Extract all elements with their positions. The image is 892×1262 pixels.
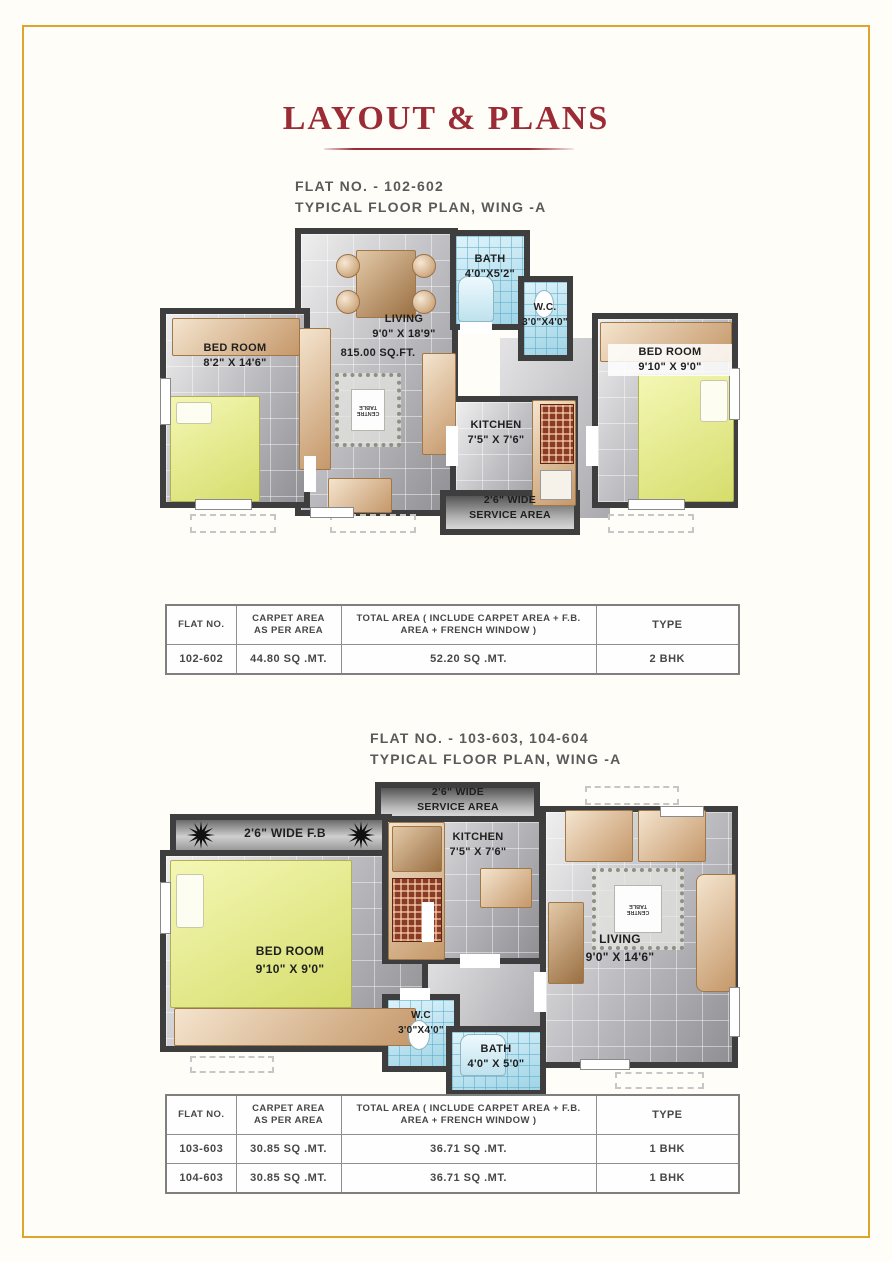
room-name: W.C — [378, 1008, 464, 1023]
column-header-total-area: TOTAL AREA ( INCLUDE CARPET AREA + F.B. … — [341, 1095, 596, 1135]
centre-table: CENTRE TABLE — [335, 373, 401, 447]
cell-total-area: 52.20 SQ .MT. — [341, 645, 596, 675]
label-service-area: 2'6" WIDE SERVICE AREA — [443, 493, 577, 523]
label-bedroom-left: BED ROOM 8'2" X 14'6" — [170, 341, 300, 371]
dining-chair — [412, 254, 436, 278]
stove — [392, 878, 442, 942]
room-dim: 3'0"X4'0" — [512, 315, 578, 330]
room-dim: 4'0" X 5'0" — [450, 1057, 542, 1072]
door-gap — [586, 426, 598, 466]
room-name: BATH — [448, 252, 532, 267]
room-dim: 9'0" X 18'9" — [334, 327, 474, 342]
table-row: 102-602 44.80 SQ .MT. 52.20 SQ .MT. 2 BH… — [166, 645, 739, 675]
plan1-heading: FLAT NO. - 102-602 TYPICAL FLOOR PLAN, W… — [295, 176, 546, 218]
label-living: LIVING 9'0" X 18'9" — [334, 312, 474, 342]
cell-type: 1 BHK — [596, 1164, 739, 1194]
column-header-total-area: TOTAL AREA ( INCLUDE CARPET AREA + F.B. … — [341, 605, 596, 645]
cell-flat-no: 103-603 — [166, 1135, 236, 1164]
service-line2: SERVICE AREA — [443, 508, 577, 523]
label-wc: W.C. 3'0"X4'0" — [512, 300, 578, 330]
column-header-carpet-area: CARPET AREA AS PER AREA — [236, 1095, 341, 1135]
balcony-outline — [608, 514, 694, 533]
room-name: LIVING — [334, 312, 474, 327]
armchair — [565, 810, 633, 862]
label-kitchen: KITCHEN 7'5" X 7'6" — [446, 418, 546, 448]
table-row: 104-603 30.85 SQ .MT. 36.71 SQ .MT. 1 BH… — [166, 1164, 739, 1194]
cell-carpet-area: 30.85 SQ .MT. — [236, 1135, 341, 1164]
cell-type: 2 BHK — [596, 645, 739, 675]
room-dim: 9'10" X 9'0" — [190, 960, 390, 978]
room-dim: 8'2" X 14'6" — [170, 356, 300, 371]
room-name: BED ROOM — [611, 345, 729, 360]
table-header-row: FLAT NO. CARPET AREA AS PER AREA TOTAL A… — [166, 1095, 739, 1135]
service-line1: 2'6" WIDE — [378, 785, 538, 800]
window-marker — [660, 806, 704, 817]
centre-table-label: CENTRE TABLE — [353, 404, 383, 416]
spec-table-1: FLAT NO. CARPET AREA AS PER AREA TOTAL A… — [165, 604, 740, 675]
column-header-flat-no: FLAT NO. — [166, 605, 236, 645]
window-marker — [729, 987, 740, 1037]
window-marker — [160, 378, 171, 425]
spec-table-2: FLAT NO. CARPET AREA AS PER AREA TOTAL A… — [165, 1094, 740, 1194]
cell-type: 1 BHK — [596, 1135, 739, 1164]
door-gap — [400, 988, 430, 1000]
balcony-outline — [585, 786, 679, 805]
cell-total-area: 36.71 SQ .MT. — [341, 1164, 596, 1194]
cell-total-area: 36.71 SQ .MT. — [341, 1135, 596, 1164]
plan2-heading-line1: FLAT NO. - 103-603, 104-604 — [370, 728, 621, 749]
label-wc: W.C 3'0"X4'0" — [378, 1008, 464, 1038]
room-name: KITCHEN — [446, 418, 546, 433]
cell-carpet-area: 30.85 SQ .MT. — [236, 1164, 341, 1194]
label-living: LIVING 9'0" X 14'6" — [540, 930, 700, 966]
label-bath: BATH 4'0"X5'2" — [448, 252, 532, 282]
service-line1: 2'6" WIDE — [443, 493, 577, 508]
label-flower-bed: 2'6" WIDE F.B — [210, 826, 360, 841]
door-gap — [534, 972, 546, 1012]
balcony-outline — [190, 1056, 274, 1073]
label-bath: BATH 4'0" X 5'0" — [450, 1042, 542, 1072]
plan1-heading-line1: FLAT NO. - 102-602 — [295, 176, 546, 197]
column-header-flat-no: FLAT NO. — [166, 1095, 236, 1135]
label-bedroom-right: BED ROOM 9'10" X 9'0" — [608, 344, 732, 376]
dining-table — [356, 250, 416, 318]
room-name: LIVING — [540, 930, 700, 948]
pillow — [176, 874, 204, 928]
page-title: LAYOUT & PLANS — [0, 100, 892, 138]
label-total-area: 815.00 SQ.FT. — [308, 346, 448, 361]
dining-chair — [336, 290, 360, 314]
table-header-row: FLAT NO. CARPET AREA AS PER AREA TOTAL A… — [166, 605, 739, 645]
column-header-type: TYPE — [596, 1095, 739, 1135]
pillow — [176, 402, 212, 424]
room-dim: 4'0"X5'2" — [448, 267, 532, 282]
label-bedroom: BED ROOM 9'10" X 9'0" — [190, 942, 390, 978]
door-gap — [460, 954, 500, 968]
label-kitchen: KITCHEN 7'5" X 7'6" — [420, 830, 536, 860]
centre-table-top: CENTRE TABLE — [614, 885, 662, 933]
window-marker — [310, 507, 354, 518]
balcony-outline — [190, 514, 276, 533]
room-name: W.C. — [512, 300, 578, 315]
window-marker — [580, 1059, 630, 1070]
floor-plan-1: CENTRE TABLE BED ROOM 8'2" X 14'6" — [160, 228, 740, 535]
window-marker — [195, 499, 252, 510]
dining-chair — [336, 254, 360, 278]
balcony-outline — [615, 1072, 704, 1089]
door-gap — [304, 456, 316, 492]
cell-flat-no: 104-603 — [166, 1164, 236, 1194]
service-line2: SERVICE AREA — [378, 800, 538, 815]
plan2-heading-line2: TYPICAL FLOOR PLAN, WING -A — [370, 749, 621, 770]
cell-flat-no: 102-602 — [166, 645, 236, 675]
column-header-type: TYPE — [596, 605, 739, 645]
room-dim: 7'5" X 7'6" — [446, 433, 546, 448]
centre-table-label: CENTRE TABLE — [623, 903, 653, 915]
pillow — [700, 380, 728, 422]
room-dim: 7'5" X 7'6" — [420, 845, 536, 860]
title-underline — [324, 148, 574, 150]
room-name: BATH — [450, 1042, 542, 1057]
plan2-heading: FLAT NO. - 103-603, 104-604 TYPICAL FLOO… — [370, 728, 621, 770]
floor-plan-2: CENTRE TABLE 2'6" WIDE SERVICE AREA 2'6"… — [160, 782, 740, 1097]
label-service-area: 2'6" WIDE SERVICE AREA — [378, 785, 538, 815]
door-gap — [422, 902, 434, 942]
cell-carpet-area: 44.80 SQ .MT. — [236, 645, 341, 675]
table-row: 103-603 30.85 SQ .MT. 36.71 SQ .MT. 1 BH… — [166, 1135, 739, 1164]
room-dim: 9'0" X 14'6" — [540, 948, 700, 966]
kitchen-counter — [480, 868, 532, 908]
room-name: KITCHEN — [420, 830, 536, 845]
room-name: BED ROOM — [190, 942, 390, 960]
brochure-page: LAYOUT & PLANS FLAT NO. - 102-602 TYPICA… — [0, 0, 892, 1262]
room-dim: 9'10" X 9'0" — [611, 360, 729, 375]
room-dim: 3'0"X4'0" — [378, 1023, 464, 1038]
sofa — [696, 874, 736, 992]
dining-chair — [412, 290, 436, 314]
centre-table-top: CENTRE TABLE — [351, 389, 385, 432]
window-marker — [160, 882, 171, 934]
armchair — [638, 810, 706, 862]
window-marker — [628, 499, 685, 510]
room-name: BED ROOM — [170, 341, 300, 356]
column-header-carpet-area: CARPET AREA AS PER AREA — [236, 605, 341, 645]
plan1-heading-line2: TYPICAL FLOOR PLAN, WING -A — [295, 197, 546, 218]
